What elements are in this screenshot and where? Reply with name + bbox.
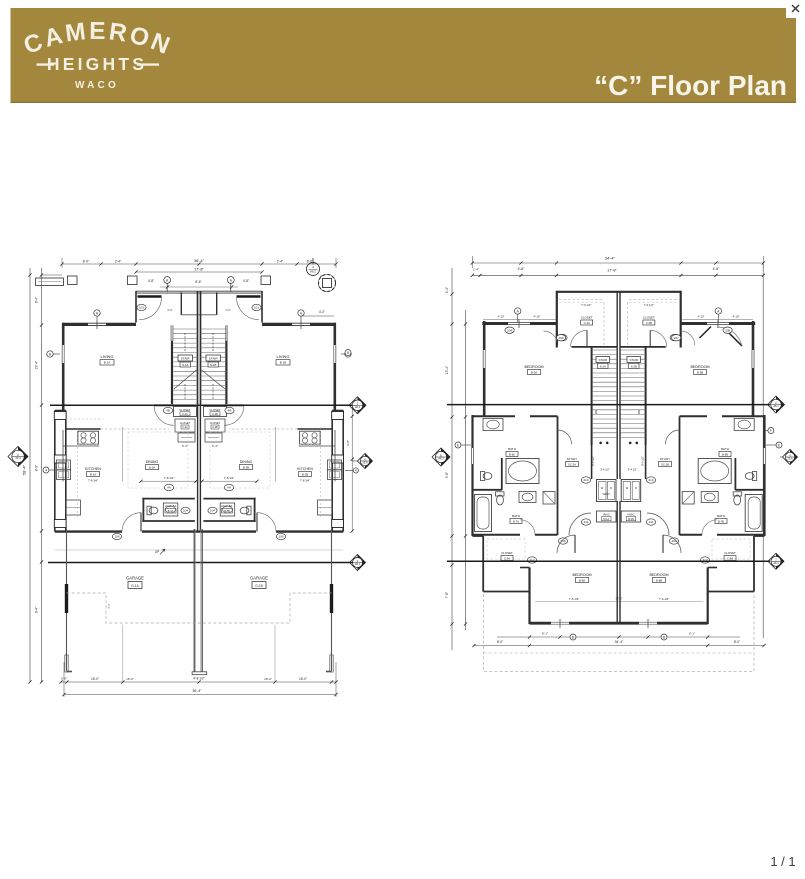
svg-text:211: 211 bbox=[649, 520, 654, 524]
svg-text:B-2A: B-2A bbox=[90, 472, 96, 476]
svg-text:STAIR: STAIR bbox=[598, 358, 607, 362]
svg-text:B: B bbox=[663, 635, 665, 639]
svg-text:S-2A: S-2A bbox=[600, 364, 606, 368]
svg-text:SC-2B: SC-2B bbox=[661, 462, 669, 466]
svg-text:36'-4": 36'-4" bbox=[194, 258, 205, 263]
svg-text:4'-0": 4'-0" bbox=[107, 603, 111, 609]
svg-text:CLOSET: CLOSET bbox=[643, 316, 655, 320]
svg-text:C-5A: C-5A bbox=[504, 556, 510, 560]
svg-text:STAIR: STAIR bbox=[209, 356, 219, 360]
svg-text:M-1B: M-1B bbox=[628, 518, 634, 521]
svg-text:101: 101 bbox=[139, 306, 144, 310]
svg-text:C-2A: C-2A bbox=[182, 426, 188, 429]
svg-text:6'-1": 6'-1" bbox=[542, 632, 548, 636]
svg-text:4'-4": 4'-4" bbox=[445, 287, 449, 293]
svg-text:1 / 1: 1 / 1 bbox=[770, 854, 795, 869]
svg-text:CLOSET: CLOSET bbox=[724, 551, 736, 555]
svg-text:58'-4": 58'-4" bbox=[22, 464, 27, 475]
svg-text:E: E bbox=[457, 443, 459, 447]
svg-text:M-1A: M-1A bbox=[603, 518, 609, 521]
svg-text:CLOSET: CLOSET bbox=[179, 408, 190, 412]
svg-text:16'-0": 16'-0" bbox=[299, 677, 307, 681]
svg-text:LIVING: LIVING bbox=[100, 354, 113, 359]
svg-text:B-6B: B-6B bbox=[722, 452, 728, 456]
svg-text:4'-10": 4'-10" bbox=[497, 315, 504, 319]
svg-text:BEDROOM: BEDROOM bbox=[524, 365, 543, 369]
svg-text:16'-0": 16'-0" bbox=[264, 677, 272, 681]
svg-text:1'-4": 1'-4" bbox=[473, 268, 479, 272]
svg-text:7'-0 1/4": 7'-0 1/4" bbox=[644, 303, 654, 307]
svg-text:E: E bbox=[778, 443, 780, 447]
svg-text:UP: UP bbox=[155, 550, 159, 554]
svg-text:SC-2A: SC-2A bbox=[568, 462, 576, 466]
svg-text:2'-4": 2'-4" bbox=[277, 260, 283, 264]
svg-text:HVAC: HVAC bbox=[627, 513, 634, 517]
svg-text:4'-10": 4'-10" bbox=[697, 315, 704, 319]
svg-text:C-1B: C-1B bbox=[212, 413, 218, 416]
svg-text:4'-8": 4'-8" bbox=[713, 267, 721, 271]
svg-text:B-4B: B-4B bbox=[224, 510, 230, 513]
svg-text:4: 4 bbox=[45, 468, 47, 472]
svg-text:17'-8": 17'-8" bbox=[607, 269, 617, 273]
svg-text:C-3A: C-3A bbox=[584, 321, 590, 325]
svg-text:104: 104 bbox=[210, 509, 215, 513]
svg-text:3'-4 1/2": 3'-4 1/2" bbox=[600, 468, 610, 472]
svg-text:LIVING: LIVING bbox=[276, 354, 289, 359]
svg-text:4: 4 bbox=[355, 469, 357, 473]
svg-text:S-1B: S-1B bbox=[210, 363, 216, 367]
svg-text:4B: 4B bbox=[166, 409, 170, 413]
svg-text:8'-0 1/2": 8'-0 1/2" bbox=[641, 456, 645, 466]
svg-text:BEDROOM: BEDROOM bbox=[572, 573, 591, 577]
svg-text:7'-8 1/2": 7'-8 1/2" bbox=[164, 476, 175, 480]
svg-text:211: 211 bbox=[584, 520, 589, 524]
svg-text:34'-4": 34'-4" bbox=[605, 256, 616, 261]
svg-text:B-7B: B-7B bbox=[718, 519, 724, 523]
svg-text:204: 204 bbox=[507, 328, 512, 332]
svg-text:4'-10": 4'-10" bbox=[533, 315, 540, 319]
svg-text:4'-8 1/2": 4'-8 1/2" bbox=[193, 677, 205, 681]
svg-text:4'-8": 4'-8" bbox=[518, 267, 526, 271]
svg-text:8'-0": 8'-0" bbox=[35, 464, 39, 471]
svg-text:DN: DN bbox=[637, 410, 641, 414]
svg-text:4A: 4A bbox=[167, 486, 171, 490]
svg-text:23'-4": 23'-4" bbox=[35, 360, 39, 369]
svg-text:HVAC: HVAC bbox=[603, 513, 610, 517]
svg-text:DINING: DINING bbox=[240, 460, 253, 464]
svg-text:“C” Floor Plan: “C” Floor Plan bbox=[594, 70, 787, 101]
svg-text:STUDY: STUDY bbox=[660, 457, 671, 461]
svg-text:BATH: BATH bbox=[508, 447, 516, 451]
svg-text:B-5A: B-5A bbox=[531, 370, 537, 374]
svg-text:G-1A: G-1A bbox=[131, 584, 139, 588]
svg-text:17'-8": 17'-8" bbox=[194, 268, 204, 272]
svg-text:B: B bbox=[572, 635, 574, 639]
svg-text:D: D bbox=[610, 486, 612, 490]
svg-text:101: 101 bbox=[254, 306, 259, 310]
svg-text:F: F bbox=[770, 429, 772, 433]
svg-text:B-6A: B-6A bbox=[509, 452, 515, 456]
svg-text:16'-0": 16'-0" bbox=[91, 677, 99, 681]
svg-text:S-2B: S-2B bbox=[631, 364, 637, 368]
svg-text:B-4A: B-4A bbox=[168, 510, 174, 513]
svg-text:CLOSET: CLOSET bbox=[501, 551, 513, 555]
svg-text:7'-8 3/4": 7'-8 3/4" bbox=[300, 479, 310, 483]
svg-text:106: 106 bbox=[114, 535, 119, 539]
svg-text:7'-8 1/2": 7'-8 1/2" bbox=[224, 476, 235, 480]
svg-text:BEDROOM: BEDROOM bbox=[690, 365, 709, 369]
svg-text:S-1A: S-1A bbox=[182, 363, 188, 367]
svg-text:C-2B: C-2B bbox=[212, 426, 218, 429]
svg-text:210: 210 bbox=[583, 478, 588, 482]
svg-text:D: D bbox=[635, 486, 637, 490]
svg-text:CLOSET: CLOSET bbox=[209, 408, 220, 412]
svg-text:B-8B: B-8B bbox=[656, 578, 662, 582]
svg-text:7'-6 1/4": 7'-6 1/4" bbox=[569, 597, 580, 601]
svg-text:DN: DN bbox=[594, 410, 598, 414]
svg-text:GARAGE: GARAGE bbox=[250, 576, 268, 581]
svg-text:DINING: DINING bbox=[146, 460, 159, 464]
svg-text:8'-0": 8'-0" bbox=[497, 640, 503, 644]
svg-text:CLOSET: CLOSET bbox=[581, 316, 593, 320]
svg-text:16'-0": 16'-0" bbox=[126, 677, 134, 681]
svg-text:B-1B: B-1B bbox=[280, 361, 286, 365]
svg-text:CLOSET: CLOSET bbox=[210, 421, 221, 425]
svg-text:4'-8": 4'-8" bbox=[148, 279, 154, 283]
svg-text:B: B bbox=[49, 352, 51, 356]
svg-text:B-2B: B-2B bbox=[302, 472, 308, 476]
svg-text:9'-4": 9'-4" bbox=[35, 296, 39, 303]
svg-text:7'-8 3/4": 7'-8 3/4" bbox=[88, 479, 98, 483]
svg-text:A6.2: A6.2 bbox=[310, 270, 316, 274]
svg-text:9'-8": 9'-8" bbox=[445, 472, 449, 478]
svg-text:34'-4": 34'-4" bbox=[615, 640, 624, 644]
svg-text:CLOSET: CLOSET bbox=[180, 421, 191, 425]
svg-text:13'-4": 13'-4" bbox=[445, 366, 449, 374]
svg-text:106: 106 bbox=[278, 535, 283, 539]
svg-text:BATH: BATH bbox=[721, 447, 729, 451]
svg-text:6'-4": 6'-4" bbox=[212, 444, 218, 448]
svg-text:209: 209 bbox=[671, 539, 676, 543]
svg-text:7'-6 1/4": 7'-6 1/4" bbox=[659, 597, 670, 601]
svg-text:3'-6": 3'-6" bbox=[167, 308, 172, 312]
svg-text:6'-4": 6'-4" bbox=[182, 444, 188, 448]
svg-text:104: 104 bbox=[183, 509, 188, 513]
svg-text:3'-6": 3'-6" bbox=[225, 308, 230, 312]
svg-text:B-3A: B-3A bbox=[149, 465, 155, 469]
svg-text:3'-4 1/2": 3'-4 1/2" bbox=[628, 468, 638, 472]
svg-text:8'-0": 8'-0" bbox=[734, 640, 740, 644]
svg-text:STUDY: STUDY bbox=[567, 457, 578, 461]
svg-text:BATH: BATH bbox=[717, 514, 725, 518]
svg-text:B-5B: B-5B bbox=[697, 370, 703, 374]
svg-text:STAIR: STAIR bbox=[181, 356, 191, 360]
svg-text:4'-0": 4'-0" bbox=[319, 310, 325, 314]
svg-text:206: 206 bbox=[558, 336, 563, 340]
svg-text:4B: 4B bbox=[228, 409, 232, 413]
svg-text:HEIGHTS: HEIGHTS bbox=[47, 54, 147, 74]
svg-text:WASH: WASH bbox=[603, 493, 610, 496]
svg-text:C-1A: C-1A bbox=[182, 413, 188, 416]
svg-text:9'-4": 9'-4" bbox=[35, 606, 39, 613]
svg-text:B-3B: B-3B bbox=[243, 465, 249, 469]
svg-text:6'-1": 6'-1" bbox=[689, 632, 695, 636]
svg-text:STAIR: STAIR bbox=[629, 358, 638, 362]
svg-text:8'-0": 8'-0" bbox=[83, 260, 91, 264]
svg-text:208: 208 bbox=[725, 328, 730, 332]
svg-text:C-3B: C-3B bbox=[646, 321, 652, 325]
svg-text:B-1A: B-1A bbox=[104, 361, 110, 365]
svg-text:GARAGE: GARAGE bbox=[126, 576, 144, 581]
svg-text:B-8A: B-8A bbox=[579, 578, 585, 582]
svg-text:7'-0 1/4": 7'-0 1/4" bbox=[581, 303, 591, 307]
svg-text:36'-4": 36'-4" bbox=[192, 689, 202, 693]
svg-text:9'-8": 9'-8" bbox=[346, 440, 350, 446]
svg-text:WACO: WACO bbox=[75, 80, 119, 91]
svg-text:7'-8": 7'-8" bbox=[445, 592, 449, 598]
svg-text:207: 207 bbox=[674, 336, 679, 340]
svg-text:C-5B: C-5B bbox=[727, 556, 733, 560]
svg-text:BATH: BATH bbox=[512, 514, 520, 518]
svg-text:KITCHEN: KITCHEN bbox=[297, 467, 313, 471]
svg-text:2'-4": 2'-4" bbox=[115, 260, 121, 264]
svg-text:4'-8": 4'-8" bbox=[243, 279, 249, 283]
svg-text:HALF BA.: HALF BA. bbox=[221, 504, 233, 508]
svg-text:HALF BA.: HALF BA. bbox=[165, 504, 177, 508]
svg-text:B-7A: B-7A bbox=[513, 519, 519, 523]
svg-text:G-1B: G-1B bbox=[255, 584, 262, 588]
svg-text:BEDROOM: BEDROOM bbox=[649, 573, 668, 577]
svg-text:4A: 4A bbox=[227, 486, 231, 490]
svg-text:KITCHEN: KITCHEN bbox=[85, 467, 101, 471]
svg-text:210: 210 bbox=[648, 478, 653, 482]
svg-text:4'-10": 4'-10" bbox=[732, 315, 739, 319]
svg-text:8'-6": 8'-6" bbox=[195, 280, 201, 284]
svg-text:B: B bbox=[347, 351, 349, 355]
